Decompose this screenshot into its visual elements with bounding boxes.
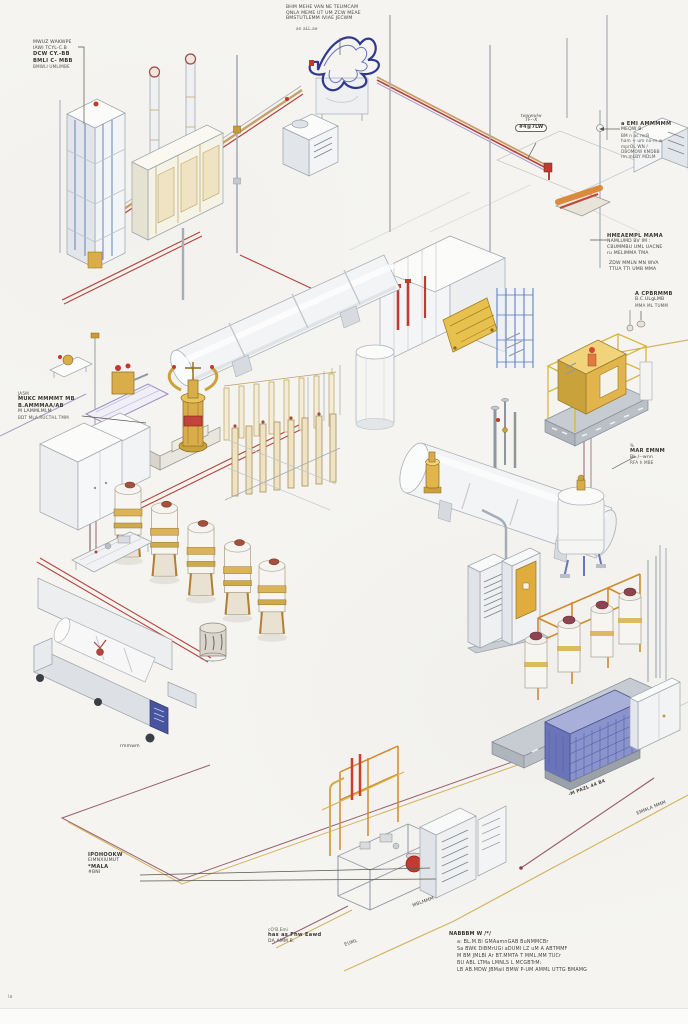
- bottom-machines: [322, 746, 506, 910]
- diagram-canvas: MWUZ WAKWPE IAWI TCYL-C.B DCW CY.-BB BML…: [0, 0, 688, 1024]
- blue-frame-section: [497, 288, 533, 368]
- annotation-line: ru MELIMMA TMA: [607, 251, 663, 257]
- annotation-line: DCW CY.-BB: [33, 51, 73, 57]
- annotation-line: BHM MEHE VAN NE TEUMCAM: [286, 5, 361, 11]
- skid-tank: [524, 632, 548, 688]
- annotation-balloon: twwwwlw 7F--X #4@7LW: [515, 113, 547, 132]
- annotation-line: CBUMMBU UML UACNE: [607, 245, 663, 251]
- annotation-line: MWUZ WAKWPE: [33, 40, 73, 46]
- page-bottom-strip: [0, 1008, 688, 1024]
- annotation-star: % MAR EMNM BL./--wnn RFA h MBE: [630, 443, 665, 466]
- annotation-line: DA AMM B.: [268, 939, 321, 945]
- annotation-right-cpb: A CPBRMMB B.C.ULgLMB MMA ML TUMM: [635, 291, 673, 308]
- fermenter-tank: [186, 520, 216, 603]
- skid-tank: [590, 601, 614, 657]
- notes-item: BU ABL LTMa LMNLS L MCGBTrM:: [449, 960, 587, 967]
- notes-item: a: BL.M.Bi GMAamnGAB BuNMMCBr: [449, 939, 587, 946]
- annotation-top-center: BHM MEHE VAN NE TEUMCAM QNLA MEME UT UM …: [286, 5, 361, 31]
- tube-bank: [224, 365, 340, 510]
- annotation-bottom-small: cO'B.Emi has as Fhw Eawd DA AMM B.: [268, 927, 321, 944]
- annotation-line: MUKC MMMMT MB: [18, 396, 75, 402]
- twin-columns: [132, 54, 223, 240]
- yellow-caged-unit: [545, 310, 652, 446]
- annotation-line: BMWLI UMLIMBE: [33, 64, 73, 69]
- storage-silo: [356, 345, 394, 430]
- drum: [200, 623, 226, 661]
- annotation-notes-list: NABBBM W /*/ a: BL.M.Bi GMAamnGAB BuNMMC…: [449, 931, 587, 974]
- fermenter-tank-row: [113, 482, 287, 642]
- fermenter-tank: [223, 540, 253, 623]
- skid-tank: [557, 616, 581, 672]
- annotation-line: an aLL.ae: [296, 26, 361, 31]
- annotation-line: MMA ML TUMM: [635, 303, 673, 308]
- vessel-top-piping: [491, 398, 515, 470]
- annotation-line: TTUA TTI UMB MMA: [609, 267, 659, 273]
- notes-item: M BM JMLBI Ar BT.MMTA T MML.MM TUCr: [449, 953, 587, 960]
- annotation-line: BMSTUTLEMM IVIAE JECWM: [286, 16, 361, 22]
- annotation-right-mid: HMEAEMPL MAMA NAMLUMD BV IM : CBUMMBU UM…: [607, 233, 663, 257]
- annotation-mid-left: JA5M MUKC MMMMT MB B.AMMMAA/AB M LAMMLML…: [18, 391, 75, 420]
- skid-tank: [618, 588, 642, 644]
- vertical-vessel: [558, 475, 606, 578]
- annotation-fermenter-small: rmmwm: [120, 744, 140, 750]
- blue-mesh-compressor: [545, 690, 640, 790]
- annotation-line: rm mLBY MDLM: [621, 154, 671, 159]
- left-pump: [50, 355, 92, 378]
- annotation-balloon-bubble: #4@7LW: [515, 124, 547, 132]
- notes-item: Sa BWK DiBMrUGi aDUMI LZ uM A ABTMMF: [449, 946, 587, 953]
- annotation-line: has as Fhw Eawd: [268, 932, 321, 938]
- heat-exchanger-block: [380, 236, 533, 368]
- enclosed-horizontal-tank: [34, 578, 196, 743]
- annotation-line: MAR EMNM: [630, 448, 665, 454]
- annotation-right-lower: ZDW MMLN MN WVA TTUA TTI UMB MMA: [609, 261, 659, 272]
- annotation-top-left: MWUZ WAKWPE IAWI TCYL-C.B DCW CY.-BB BML…: [33, 40, 73, 69]
- annotation-line: RFA h MBE: [630, 460, 665, 465]
- notes-title: NABBBM W /*/: [449, 931, 587, 939]
- purple-skid-pump: [86, 364, 168, 425]
- annotation-line: ZDW MMLN MN WVA: [609, 261, 659, 267]
- annotation-line: BDT MLA.RUCTHL TMM: [18, 415, 75, 420]
- process-tower: [67, 99, 125, 268]
- page-mark: ia: [8, 994, 12, 1000]
- orange-feeder: [556, 188, 610, 216]
- notes-item: LB AB.MDW JBMail BMW P-UM AMML UTTG BMAM…: [449, 967, 587, 974]
- fermenter-tank: [257, 559, 287, 642]
- annotation-bottom-left: IPOHOOKW EIMNXIUMUT *MALA #BNI: [88, 852, 123, 876]
- agitator-coil-mixer: [309, 37, 379, 121]
- fermenter-tank: [150, 501, 180, 584]
- annotation-right-fire: a EMI AMMMMM MEQW B. BM n ac mrB ham + u…: [621, 121, 671, 159]
- top-gray-machine: [283, 114, 338, 176]
- slotted-cabinets: [420, 806, 506, 898]
- annotation-line: #BNI: [88, 870, 123, 876]
